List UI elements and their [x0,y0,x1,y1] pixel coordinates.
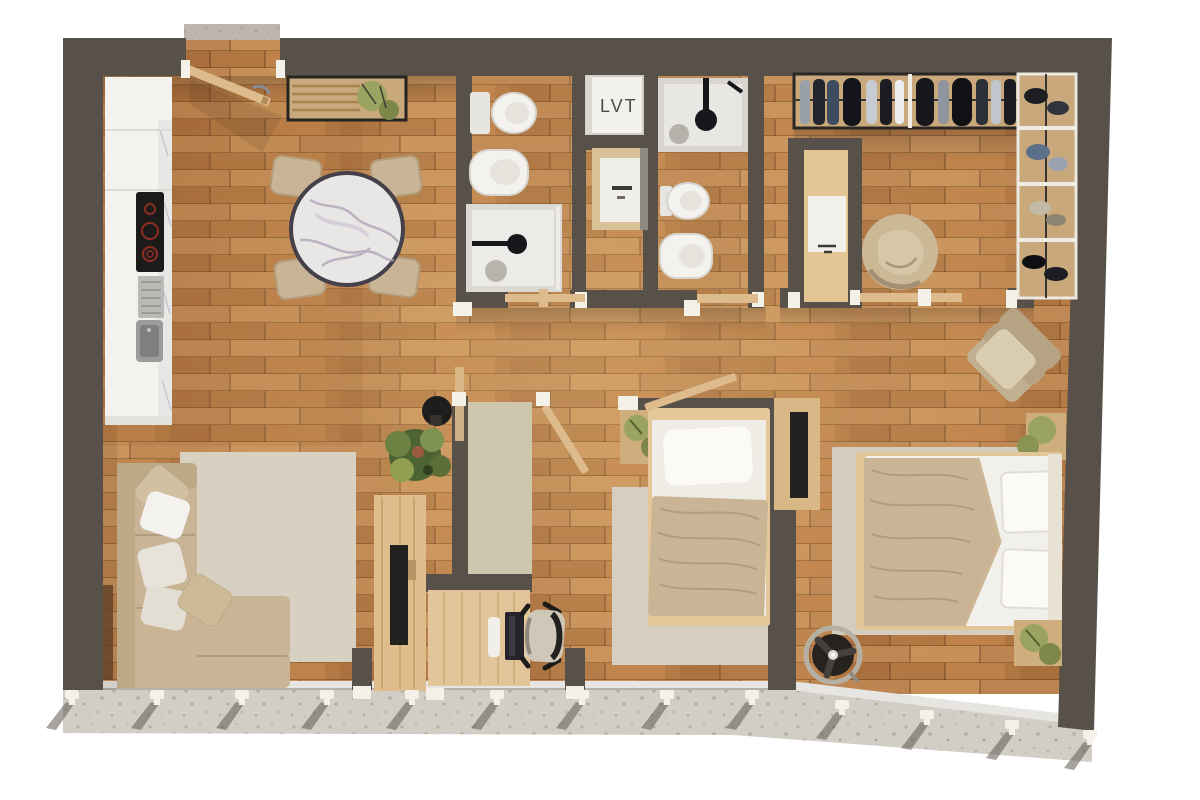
study-desk [428,590,530,686]
kitchen-counter [105,77,172,425]
closet-carpet [468,402,532,578]
wall-panel-strip [103,585,113,680]
left-wall [63,38,103,690]
floor-plan-image: LVT [0,0,1200,800]
bean-bag [862,214,938,290]
double-bed-side-table-bottom [1014,620,1062,666]
dining-set [270,155,423,300]
entry-console [288,77,406,120]
pillow [1001,471,1055,533]
headboard [1048,454,1062,628]
cooktop [136,192,164,272]
tv-console [374,495,426,691]
floor-fan [806,628,860,682]
pillow [663,426,754,487]
toilet [660,183,709,219]
floor-plan-svg: LVT [0,0,1200,800]
duvet [648,496,768,620]
laundry-cabinet [592,148,648,230]
shower-glass [556,206,560,290]
monitor [505,612,524,660]
drainboard [138,276,164,318]
dining-table [289,171,405,287]
single-bed [648,408,770,626]
dressing-wardrobe-right [1018,74,1076,298]
dressing-desk [804,150,848,302]
bathroom-2-door [697,294,758,303]
shower [466,204,562,292]
kitchen-sink [136,320,163,362]
toilet [470,92,536,134]
top-wall-main [280,38,1078,76]
dressing-wardrobe-top [794,74,1022,128]
keyboard [488,617,500,657]
utility-closet-lvt: LVT [586,76,643,134]
wall-tv [790,412,808,498]
speaker [422,396,452,426]
pillow [1001,549,1055,609]
wall-tv-panel [774,398,820,510]
tv [390,545,408,645]
utility-closet-label: LVT [600,96,638,116]
double-bed [856,452,1062,630]
shower [658,78,748,152]
